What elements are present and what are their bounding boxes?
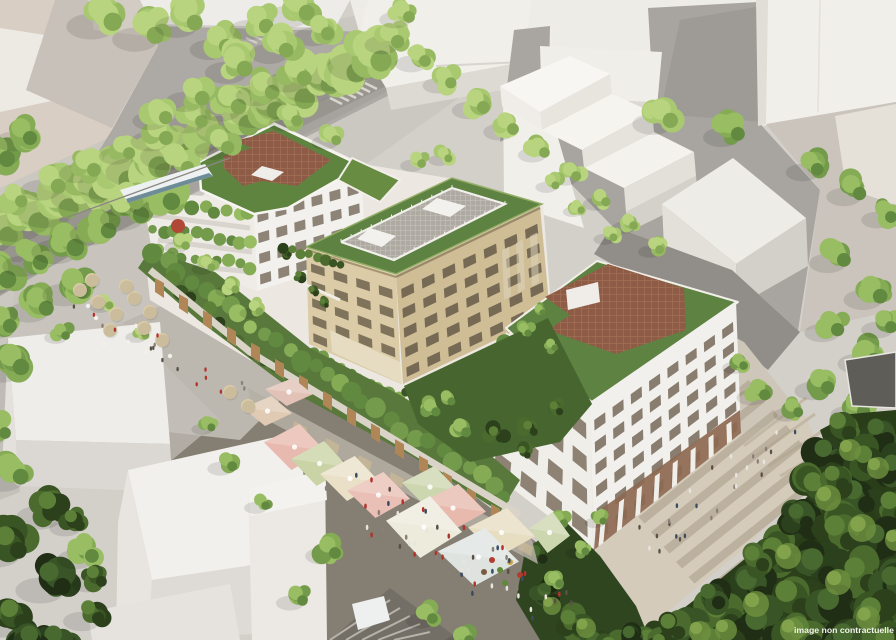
svg-text:image non contractuelle: image non contractuelle — [794, 625, 894, 635]
